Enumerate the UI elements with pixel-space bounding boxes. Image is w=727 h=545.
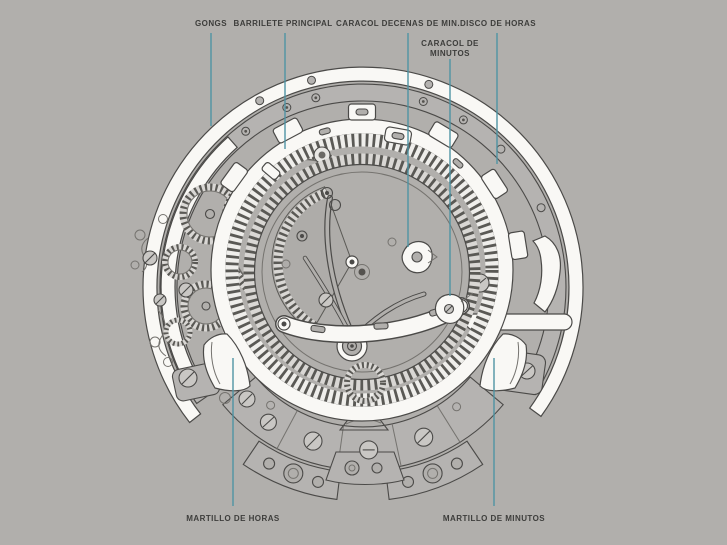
- label-caracol-de-minutos: CARACOL DE MINUTOS: [419, 39, 481, 58]
- label-barrilete-principal: BARRILETE PRINCIPAL: [233, 19, 332, 29]
- movement-diagram: GONGS BARRILETE PRINCIPAL CARACOL DECENA…: [0, 0, 727, 545]
- label-martillo-de-minutos: MARTILLO DE MINUTOS: [443, 514, 545, 524]
- movement-drawing: [0, 0, 727, 545]
- label-martillo-de-horas: MARTILLO DE HORAS: [186, 514, 279, 524]
- label-caracol-decenas: CARACOL DECENAS DE MIN.: [336, 19, 460, 29]
- label-disco-de-horas: DISCO DE HORAS: [460, 19, 536, 29]
- label-gongs: GONGS: [195, 19, 227, 29]
